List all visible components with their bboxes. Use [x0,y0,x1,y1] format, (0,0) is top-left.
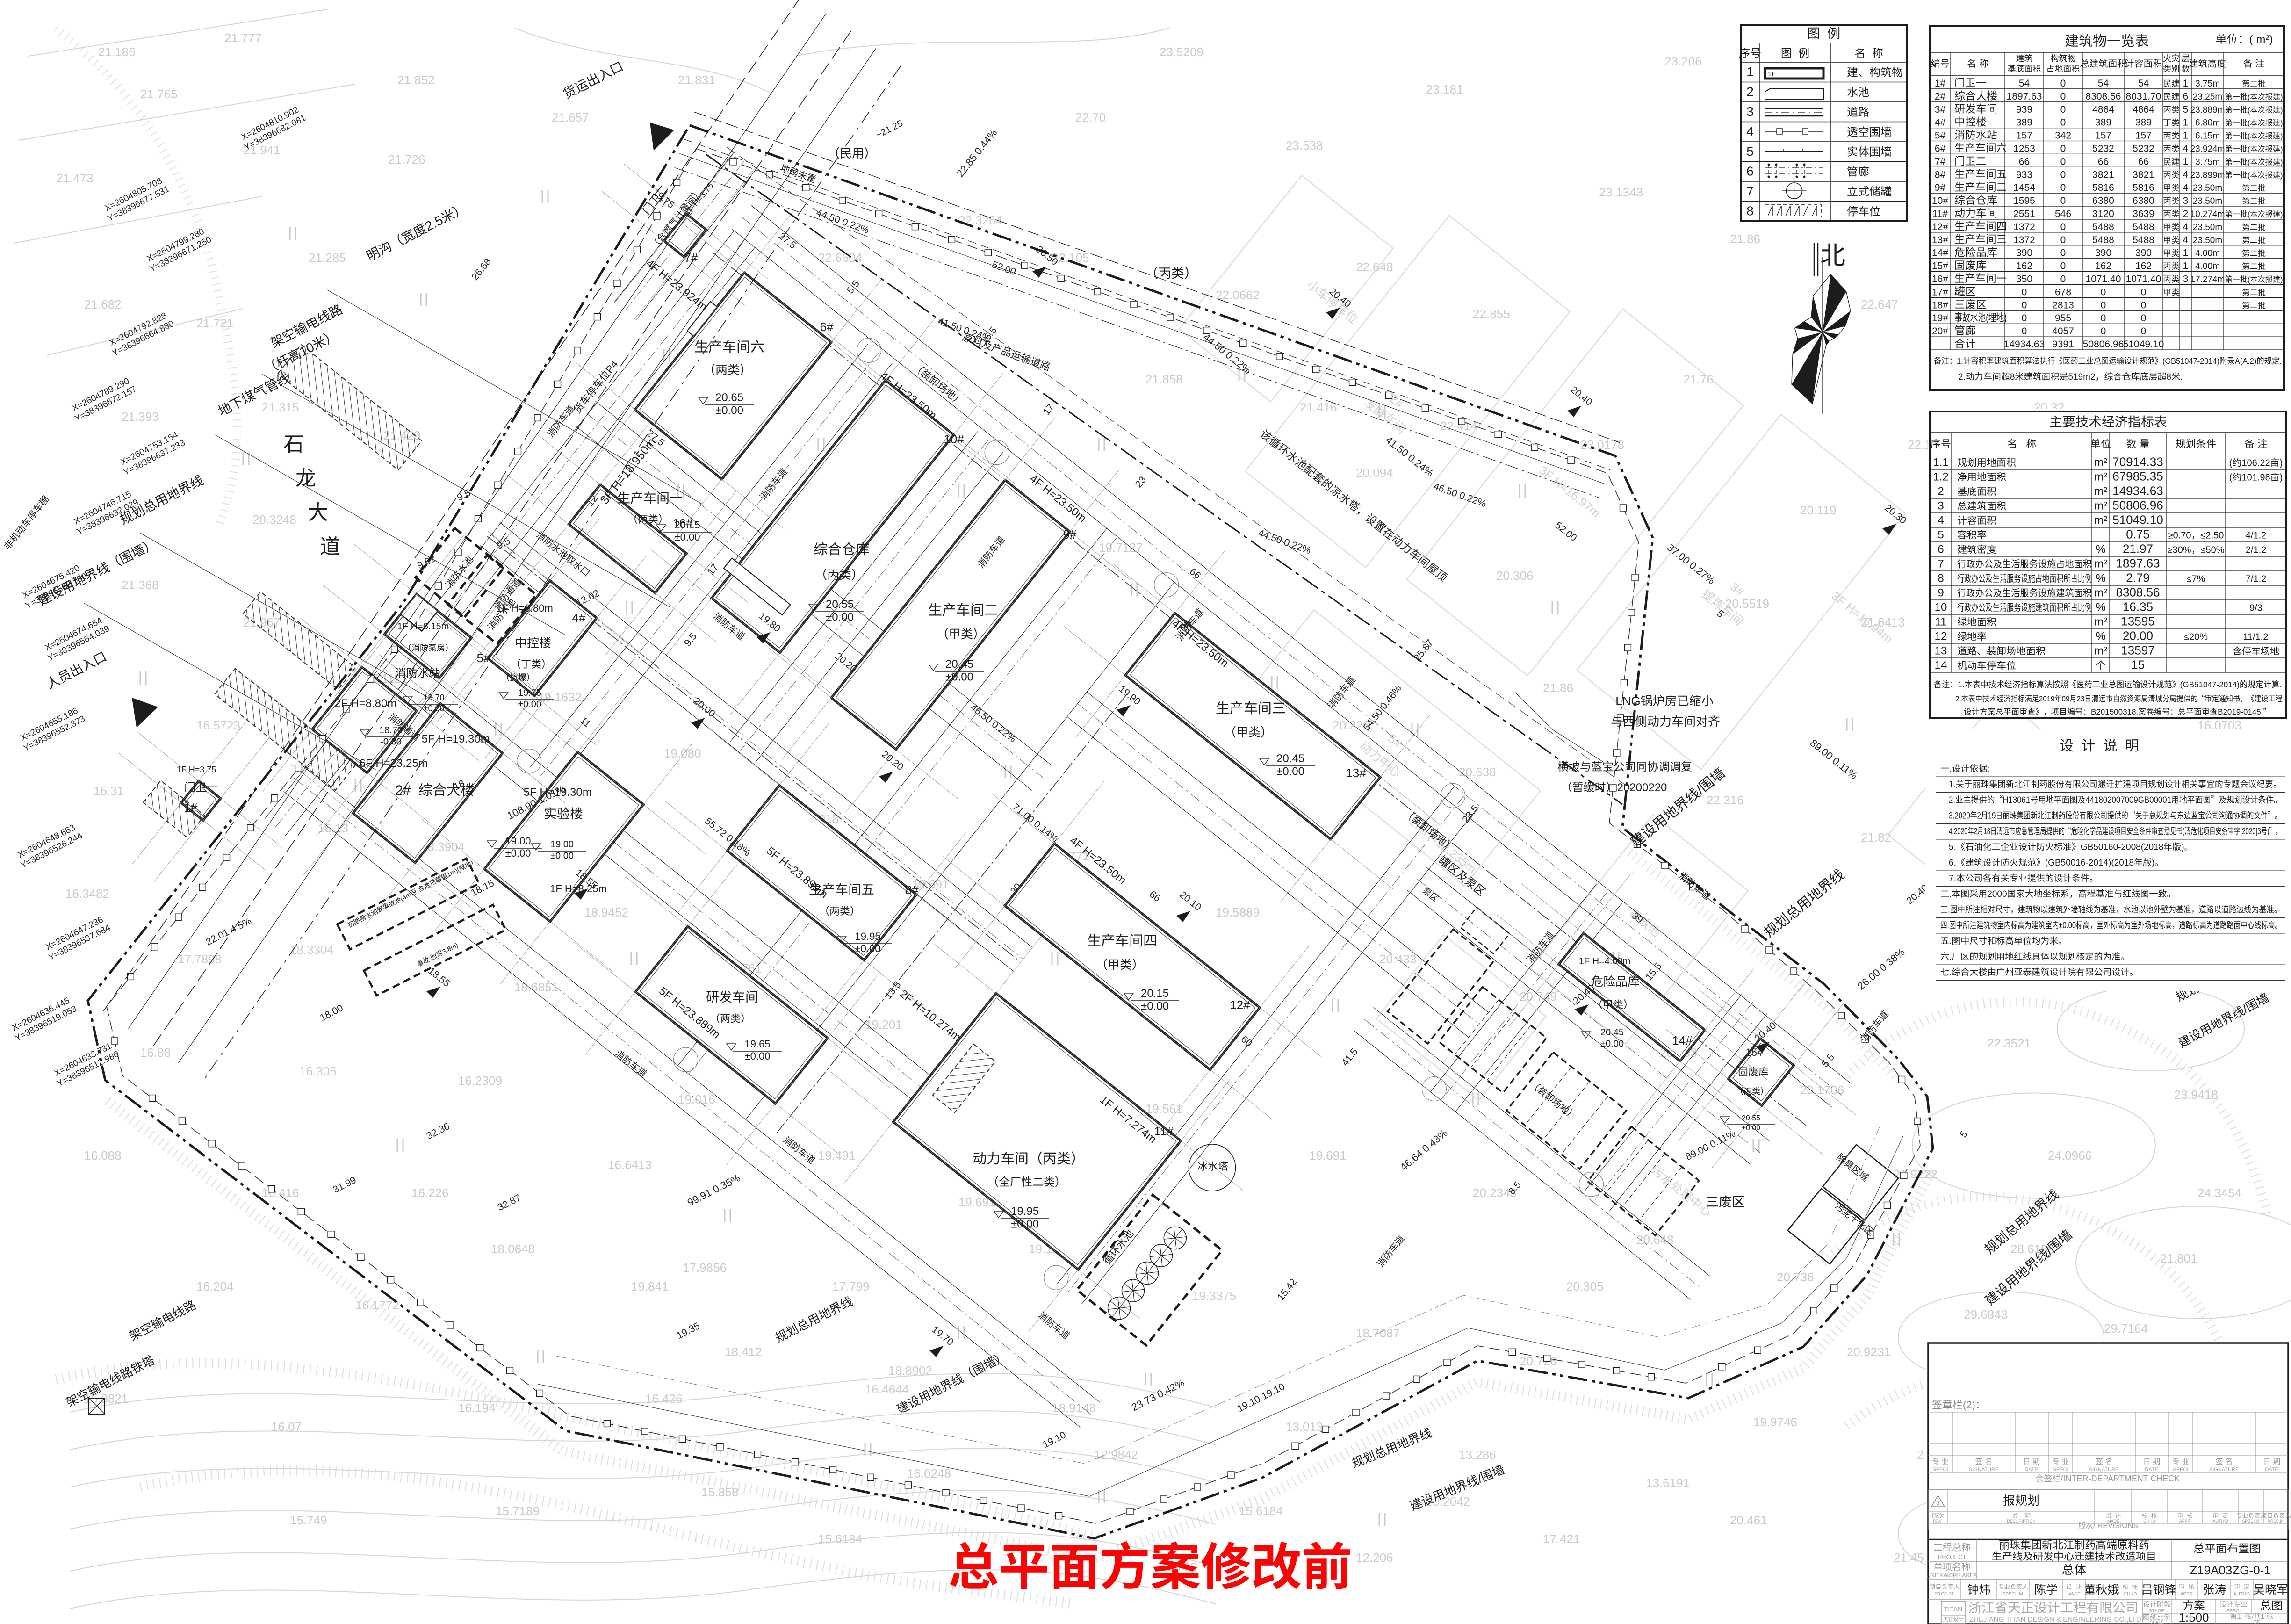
svg-text:ZHEJIANG TITAN DESIGN & ENGINE: ZHEJIANG TITAN DESIGN & ENGINEERING CO.,… [1969,1616,2143,1624]
svg-text:1372: 1372 [2013,235,2035,245]
svg-text:19.95: 19.95 [855,931,880,942]
svg-text:19.65: 19.65 [744,1038,770,1050]
svg-text:7/1.2: 7/1.2 [2246,574,2266,585]
svg-text:20.2042: 20.2042 [1426,1494,1470,1509]
svg-text:(: ( [2248,171,2250,180]
svg-text:0: 0 [2101,313,2106,324]
svg-text:389: 389 [2135,117,2152,128]
svg-text:9/3: 9/3 [2249,603,2262,614]
svg-text:390: 390 [2095,248,2111,259]
svg-text:1F H=4.00m: 1F H=4.00m [1579,956,1631,967]
svg-text:(: ( [1986,312,1988,324]
svg-text:): ) [2280,473,2283,483]
svg-text:50806.96: 50806.96 [2083,339,2124,350]
svg-text:13595: 13595 [2121,614,2154,628]
svg-text:STAGE: STAGE [2149,1609,2164,1614]
svg-text:≤50%: ≤50% [2201,545,2225,556]
svg-text:51049.10: 51049.10 [2112,513,2163,527]
svg-text:16.426: 16.426 [645,1392,683,1406]
svg-text:4/1.2: 4/1.2 [2246,531,2266,541]
svg-text:0: 0 [2060,104,2066,115]
svg-text:350: 350 [2016,274,2032,285]
svg-text:21.831: 21.831 [678,73,715,87]
svg-text:): ) [2267,827,2269,837]
svg-text:m²: m² [2094,485,2107,498]
svg-text:AUTH'D: AUTH'D [2213,1519,2228,1523]
svg-text:13597: 13597 [2121,643,2154,657]
svg-text:0.75: 0.75 [2126,527,2150,541]
svg-text:5488: 5488 [2133,222,2154,232]
svg-text:( m²): ( m²) [2249,33,2273,46]
svg-text:21.76: 21.76 [1683,372,1714,386]
svg-text:0: 0 [2060,182,2066,193]
svg-text:20.119: 20.119 [1800,503,1837,517]
svg-text:9#: 9# [1063,527,1077,541]
svg-text:5488: 5488 [2092,222,2114,232]
svg-text:±0.00: ±0.00 [715,404,743,417]
svg-text:3#: 3# [1935,104,1946,115]
svg-text:1F H=6.15m: 1F H=6.15m [397,621,449,632]
svg-text:±0.00: ±0.00 [855,943,881,954]
svg-text:SPECI: SPECI [2053,1467,2068,1472]
svg-text:162: 162 [2095,261,2111,272]
svg-text:(: ( [2183,827,2185,837]
svg-text:16#: 16# [672,516,693,530]
svg-text:22.3264: 22.3264 [958,213,1002,227]
svg-text:21.765: 21.765 [140,87,178,101]
svg-text:1:500: 1:500 [2178,1610,2209,1624]
svg-text:): ) [2280,171,2283,180]
svg-text:20.65: 20.65 [715,391,743,404]
svg-text:23.181: 23.181 [1426,82,1463,96]
svg-text:24.0966: 24.0966 [2048,1148,2092,1162]
svg-text:.: . [2180,372,2183,382]
svg-text:8#: 8# [905,883,919,897]
svg-text:390: 390 [2135,248,2152,259]
svg-text:15.749: 15.749 [290,1513,327,1527]
svg-text:342: 342 [2055,130,2071,141]
svg-text:20.305: 20.305 [1566,1279,1604,1293]
svg-text:2813: 2813 [2052,300,2074,310]
svg-text:APPR: APPR [2180,1592,2193,1597]
svg-text:9#: 9# [1935,182,1946,193]
svg-text:19.7127: 19.7127 [1099,541,1143,555]
svg-text:09: 09 [2062,694,2070,703]
svg-text:1: 1 [2183,78,2189,89]
svg-text:1.1: 1.1 [1933,456,1948,469]
svg-text:4.00m: 4.00m [2195,262,2220,272]
svg-text:20.45: 20.45 [945,658,973,671]
svg-text:51049.10: 51049.10 [2123,339,2164,350]
svg-text:TITAN: TITAN [1944,1605,1962,1613]
svg-text:10: 10 [1935,601,1947,614]
svg-text:11: 11 [1935,616,1947,628]
svg-text:-0.30: -0.30 [380,736,402,747]
svg-text:21.186: 21.186 [98,45,136,59]
svg-text:4: 4 [2183,143,2189,154]
svg-text:(: ( [2248,93,2250,101]
svg-text:Z19A03ZG-0-1: Z19A03ZG-0-1 [2190,1563,2270,1577]
svg-text:6.: 6. [1949,858,1956,868]
svg-text:4.2020: 4.2020 [1949,827,1967,837]
svg-text:SIGNATURE: SIGNATURE [1969,1467,1998,1472]
svg-text:20.45: 20.45 [1276,752,1304,765]
svg-text:1.: 1. [1957,356,1963,366]
svg-text:≥0.70: ≥0.70 [2168,531,2191,541]
svg-text:CHKD: CHKD [2143,1519,2155,1523]
svg-text:7#: 7# [684,251,698,265]
svg-text:PROJ. M.: PROJ. M. [1934,1592,1954,1597]
svg-text:4: 4 [1938,514,1944,527]
svg-text:0: 0 [2101,326,2106,337]
svg-text:23.50m: 23.50m [2193,196,2222,206]
svg-text:PROJ.M.: PROJ.M. [2268,1519,2285,1523]
svg-text:≤7%: ≤7% [2187,574,2205,585]
svg-text:1897.63: 1897.63 [2007,91,2042,102]
svg-text:6380: 6380 [2092,195,2114,206]
svg-text:11#: 11# [1932,209,1948,219]
svg-text:/INTER-DEPARTMENT CHECK: /INTER-DEPARTMENT CHECK [2060,1474,2180,1483]
svg-text:DATE: DATE [2265,1467,2278,1472]
svg-text:5#: 5# [1935,130,1946,141]
svg-text:(: ( [2248,118,2250,127]
svg-text:SPECI.M.: SPECI.M. [2242,1519,2261,1523]
svg-text:16.2309: 16.2309 [458,1074,502,1088]
svg-text:4864: 4864 [2092,104,2114,115]
svg-text:16.3482: 16.3482 [65,887,109,901]
svg-text:1.: 1. [1949,779,1956,789]
svg-text:939: 939 [2016,104,2032,115]
svg-text:0: 0 [2060,235,2066,245]
svg-text:±0.00: ±0.00 [1011,1218,1039,1231]
svg-text:22.70: 22.70 [1075,110,1106,124]
svg-text:20.461: 20.461 [1730,1513,1767,1527]
svg-text:8031.70: 8031.70 [2126,91,2161,102]
svg-text:8: 8 [2010,372,2015,382]
svg-text:20.55: 20.55 [1742,1114,1760,1122]
svg-text:.: . [1949,952,1952,962]
svg-text:15.6184: 15.6184 [1239,1504,1283,1518]
svg-text:18#: 18# [1932,300,1948,310]
svg-text:±0.00: ±0.00 [1276,765,1304,778]
svg-text:2: 2 [1746,85,1754,99]
svg-text:19.00: 19.00 [505,835,531,847]
svg-text:): ) [2280,118,2283,127]
svg-text:±0.00: ±0.00 [424,704,445,713]
svg-text:4: 4 [2183,235,2189,245]
svg-text:.: . [1948,904,1950,915]
svg-text:±0.00: ±0.00 [518,699,541,709]
svg-text:6380: 6380 [2133,195,2154,206]
svg-text:18.6851: 18.6851 [514,980,558,994]
svg-text:.: . [1949,889,1952,899]
svg-text:19.5889: 19.5889 [1216,905,1260,919]
svg-text:13: 13 [1935,645,1947,657]
svg-text:19.201: 19.201 [865,1018,902,1032]
svg-text:DATE: DATE [2145,1467,2158,1472]
svg-text:m²: m² [2094,471,2107,484]
svg-text:4#: 4# [1935,117,1946,128]
svg-text:(GB50016-2014)(2018: (GB50016-2014)(2018 [2045,858,2134,868]
svg-text:1071.40: 1071.40 [2086,274,2121,285]
svg-text:7.: 7. [1949,874,1956,884]
svg-text:23.5209: 23.5209 [1160,45,1203,59]
svg-text:19.691: 19.691 [1309,1148,1347,1162]
svg-text:4#: 4# [572,611,586,625]
svg-text:23.899m: 23.899m [2190,170,2225,180]
svg-text:/ REVISIONS: / REVISIONS [2093,1522,2138,1530]
svg-text:2019: 2019 [2039,694,2055,703]
svg-text:m²: m² [2094,456,2107,469]
svg-text:20.9231: 20.9231 [1847,1345,1891,1359]
svg-text:17.274m: 17.274m [2190,275,2225,285]
svg-text:16.5723: 16.5723 [196,718,240,732]
svg-text:MADE: MADE [2067,1592,2081,1597]
svg-text:m²: m² [2094,616,2107,628]
svg-text:1595: 1595 [2013,195,2035,206]
svg-text:3120: 3120 [2092,209,2114,219]
svg-text:7#: 7# [1935,156,1946,167]
svg-text:(GB51047-2014): (GB51047-2014) [2180,680,2240,690]
svg-text:16.204: 16.204 [196,1279,234,1293]
svg-text:14934.63: 14934.63 [2004,339,2045,350]
svg-text:17.9856: 17.9856 [683,1261,727,1275]
svg-text:66: 66 [2019,156,2030,167]
svg-text:21.285: 21.285 [309,251,346,265]
svg-text:1: 1 [2183,130,2189,141]
svg-text:0: 0 [2060,78,2066,89]
svg-text:(: ( [2229,458,2233,469]
svg-text:8308.56: 8308.56 [2116,585,2160,599]
svg-text:22.6604: 22.6604 [818,251,862,265]
svg-text:20.5519: 20.5519 [1725,597,1769,611]
svg-text:54: 54 [2138,78,2149,89]
svg-text:%: % [2096,543,2105,556]
svg-text:SCALE: SCALE [2150,1620,2164,1624]
svg-text:19.95: 19.95 [1011,1205,1039,1218]
svg-text:16.088: 16.088 [84,1148,122,1162]
svg-text:19.1632: 19.1632 [538,690,582,704]
svg-text:0: 0 [2060,195,2066,206]
svg-text:16.4644: 16.4644 [865,1382,909,1396]
svg-text:16.31: 16.31 [94,784,124,798]
svg-text:SIGNATURE: SIGNATURE [2089,1467,2118,1472]
svg-text:21.86: 21.86 [1543,681,1573,695]
svg-text:16.0248: 16.0248 [907,1466,951,1480]
svg-text:17.7898: 17.7898 [178,952,222,966]
svg-text:≤20%: ≤20% [2184,632,2208,642]
svg-text:23.206: 23.206 [1664,54,1702,68]
svg-text:157: 157 [2095,130,2111,141]
svg-text:(: ( [2248,158,2250,166]
svg-text:H13061: H13061 [2003,795,2030,805]
svg-text:m²: m² [2094,500,2107,512]
svg-text:.: . [2279,680,2282,690]
svg-text:±0.00: ±0.00 [826,611,854,624]
svg-text:1253: 1253 [2013,143,2035,154]
svg-text:5: 5 [1746,144,1754,159]
svg-text:157: 157 [2135,130,2152,141]
svg-text::: : [1987,764,1989,774]
svg-text:22.647: 22.647 [1861,297,1898,311]
svg-text:16.07: 16.07 [271,1420,302,1434]
svg-text:1071.40: 1071.40 [2126,274,2161,285]
svg-text:(2): (2) [1963,1399,1975,1411]
svg-text:6.15m: 6.15m [2195,131,2220,141]
svg-text:21.393: 21.393 [122,410,159,424]
svg-text:CHKD: CHKD [2124,1592,2137,1597]
svg-text:546: 546 [2055,209,2071,219]
svg-text:11/1.2: 11/1.2 [2243,632,2268,642]
svg-text:19#: 19# [1932,313,1948,324]
svg-text:2.79: 2.79 [2126,571,2150,585]
svg-text:[2020]3: [2020]3 [2241,827,2261,837]
svg-text:10#: 10# [1932,195,1948,206]
svg-text:3: 3 [1938,500,1944,512]
svg-text:1: 1 [2183,261,2189,272]
svg-text:20200220: 20200220 [1617,781,1667,794]
svg-text:0: 0 [2141,326,2147,337]
svg-text:±0.00: ±0.00 [550,851,574,861]
svg-text:SPECI: SPECI [1933,1467,1948,1472]
svg-text:9391: 9391 [2052,339,2074,350]
svg-text:SPECI: SPECI [2173,1467,2189,1472]
svg-text:21.97: 21.97 [2123,542,2153,556]
svg-text:19.841: 19.841 [631,1279,669,1293]
svg-text:1F H=3.75: 1F H=3.75 [177,765,216,774]
svg-text:1: 1 [2183,156,2189,167]
svg-text:3.2020: 3.2020 [1949,811,1970,821]
svg-text:8: 8 [1746,204,1754,218]
svg-text:2.: 2. [1955,694,1961,703]
svg-text:22.0662: 22.0662 [1216,288,1260,302]
svg-text:13#: 13# [1932,235,1948,245]
svg-text:.: . [1949,764,1952,774]
svg-text:2: 2 [2183,209,2189,219]
svg-text:DESCRIPTION: DESCRIPTION [2007,1519,2036,1523]
svg-text:0: 0 [2060,261,2066,272]
svg-text:12: 12 [1935,630,1947,643]
svg-text:66: 66 [2138,156,2149,167]
svg-text:0: 0 [2060,156,2066,167]
svg-text:8308.56: 8308.56 [2086,91,2121,102]
svg-text:389: 389 [2016,117,2032,128]
svg-text:13.286: 13.286 [1459,1448,1496,1462]
svg-text:16.416: 16.416 [262,1186,299,1200]
svg-text:10#: 10# [944,432,964,446]
svg-text:18: 18 [1983,827,1990,837]
svg-text:21.451: 21.451 [1894,1551,1931,1565]
svg-text:21.777: 21.777 [224,31,262,45]
svg-text:4057: 4057 [2052,326,2074,337]
svg-text:6: 6 [1746,164,1754,179]
svg-text:70914.33: 70914.33 [2112,455,2163,469]
svg-text:2/1.2: 2/1.2 [2246,545,2266,556]
svg-text:389: 389 [2095,117,2111,128]
svg-text:23.0178: 23.0178 [1580,438,1624,452]
svg-text:106.22: 106.22 [2241,458,2270,469]
svg-text:m²: m² [2094,645,2107,657]
svg-text:162: 162 [2135,261,2152,272]
svg-text:±0.00: ±0.00 [945,671,973,684]
svg-text:14#: 14# [1672,1033,1693,1047]
svg-text:1: 1 [2183,248,2189,259]
svg-text:21.657: 21.657 [552,110,589,124]
svg-text:29.6843: 29.6843 [1964,1307,2008,1321]
svg-text:): ) [2181,843,2184,852]
svg-text:5816: 5816 [2092,182,2114,193]
svg-text:APPR: APPR [2179,1519,2191,1523]
svg-text:): ) [2280,105,2283,114]
svg-text:101.98: 101.98 [2241,473,2270,483]
svg-text:0: 0 [2141,300,2147,310]
svg-text:66: 66 [2098,156,2109,167]
svg-text:8#: 8# [1935,169,1946,180]
svg-text:SPECI. M.: SPECI. M. [2003,1592,2024,1597]
svg-text:21.852: 21.852 [397,73,435,87]
svg-text:3.75m: 3.75m [2195,79,2220,89]
svg-text:m²: m² [2094,558,2107,570]
svg-text:6#: 6# [1935,143,1946,154]
svg-text:4: 4 [1746,124,1754,139]
svg-text:2000: 2000 [1987,889,2007,899]
svg-text:): ) [2280,93,2283,101]
svg-text:5: 5 [1938,529,1944,541]
svg-text:5232: 5232 [2133,143,2154,154]
svg-text:(: ( [2229,473,2233,483]
svg-text:): ) [2280,144,2283,153]
svg-text:12.206: 12.206 [1356,1551,1393,1565]
svg-text:GB50160-2008(2018: GB50160-2008(2018 [2081,843,2163,852]
svg-text:19.561: 19.561 [1145,1102,1183,1116]
svg-text:REV.: REV. [1933,1519,1942,1523]
svg-text:1: 1 [2261,1613,2264,1621]
svg-text:SIGNATURE: SIGNATURE [2209,1467,2239,1472]
svg-text:14934.63: 14934.63 [2112,484,2163,498]
svg-text:23.50m: 23.50m [2193,223,2222,232]
svg-text:DATE: DATE [2024,1467,2038,1472]
svg-text:5.: 5. [1949,843,1956,852]
svg-text:±0.00: ±0.00 [745,1050,771,1062]
svg-text:933: 933 [2016,169,2032,180]
svg-text:4864: 4864 [2133,104,2154,115]
svg-text:21.801: 21.801 [2160,1251,2197,1265]
svg-text:14#: 14# [1932,248,1948,259]
svg-text:16.194: 16.194 [458,1401,496,1415]
svg-text:0: 0 [2060,222,2066,232]
svg-text:2: 2 [1977,811,1981,821]
svg-text:21.9222: 21.9222 [1894,1167,1938,1181]
svg-text:50806.96: 50806.96 [2112,498,2163,512]
svg-text:1#: 1# [1935,78,1946,89]
svg-text:1F: 1F [1768,70,1776,78]
svg-text:9: 9 [1938,587,1944,599]
svg-text:LNG: LNG [1615,694,1640,708]
svg-text:15: 15 [2131,658,2145,672]
svg-text:21.721: 21.721 [196,316,234,330]
svg-text:21.368: 21.368 [122,578,159,592]
svg-text:3: 3 [1936,1499,1940,1507]
svg-text:0: 0 [2141,313,2147,324]
svg-text:1: 1 [1746,65,1754,79]
svg-text:(: ( [2248,144,2250,153]
svg-text:A(A.2): A(A.2) [2235,356,2256,366]
svg-text:23.9418: 23.9418 [2174,1088,2218,1102]
svg-text:8: 8 [2166,372,2171,382]
svg-text:5F H=19.30m: 5F H=19.30m [422,733,490,745]
svg-text:≤2.50: ≤2.50 [2201,531,2224,541]
svg-text:2.: 2. [1958,372,1966,382]
